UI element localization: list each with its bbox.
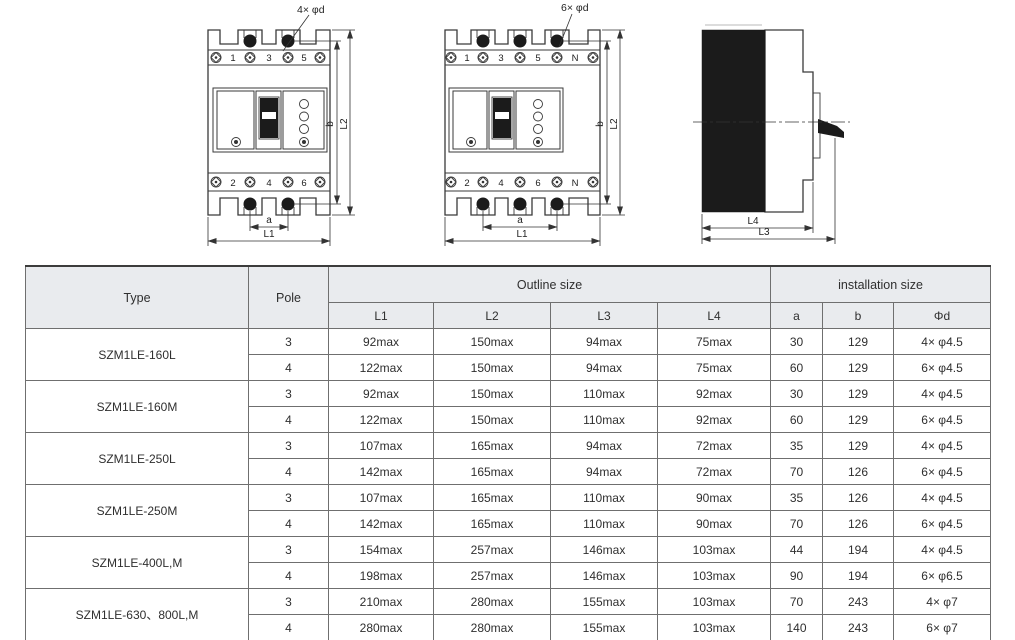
table-cell: 70: [771, 459, 823, 485]
type-cell: SZM1LE-400L,M: [26, 537, 249, 589]
terminal-label: 1: [464, 53, 469, 64]
table-cell: 4: [249, 563, 329, 589]
mounting-hole: [514, 198, 527, 211]
terminal-screw: [245, 53, 255, 63]
terminal-screw: [588, 53, 598, 63]
terminal-screw: [315, 53, 325, 63]
terminal-screw: [552, 177, 562, 187]
table-row: SZM1LE-160M392max150max110max92max301294…: [26, 381, 991, 407]
table-cell: 150max: [434, 407, 551, 433]
dim-label-l1: L1: [263, 229, 275, 240]
table-cell: 90max: [658, 511, 771, 537]
table-cell: 6× φ4.5: [894, 511, 991, 537]
terminal-label: 5: [535, 53, 540, 64]
table-cell: 94max: [551, 459, 658, 485]
table-cell: 155max: [551, 615, 658, 640]
dim-label-a: a: [517, 215, 523, 226]
table-cell: 110max: [551, 407, 658, 433]
table-cell: 3: [249, 589, 329, 615]
dimensions-table: Type Pole Outline size installation size…: [25, 265, 991, 640]
type-cell: SZM1LE-160M: [26, 381, 249, 433]
terminal-screw: [315, 177, 325, 187]
table-row: SZM1LE-250L3107max165max94max72max351294…: [26, 433, 991, 459]
table-cell: 198max: [329, 563, 434, 589]
table-cell: 6× φ7: [894, 615, 991, 640]
table-cell: 3: [249, 433, 329, 459]
table-cell: 129: [823, 329, 894, 355]
table-cell: 94max: [551, 433, 658, 459]
table-cell: 129: [823, 433, 894, 459]
datasheet-page: 1 3 5 2 4 6: [0, 0, 1015, 640]
table-cell: 194: [823, 563, 894, 589]
col-header-l1: L1: [329, 303, 434, 329]
terminal-screw: [211, 177, 221, 187]
table-cell: 44: [771, 537, 823, 563]
dim-label-a: a: [266, 215, 272, 226]
terminal-screw: [245, 177, 255, 187]
table-cell: 30: [771, 329, 823, 355]
side-body-outline: [765, 30, 813, 212]
table-cell: 4: [249, 355, 329, 381]
table-cell: 280max: [434, 589, 551, 615]
table-cell: 150max: [434, 381, 551, 407]
dim-label-l2: L2: [339, 118, 350, 130]
table-cell: 6× φ4.5: [894, 407, 991, 433]
col-header-installation-size: installation size: [771, 266, 991, 303]
table-cell: 72max: [658, 433, 771, 459]
table-cell: 94max: [551, 355, 658, 381]
front-view-3pole: 1 3 5 2 4 6: [208, 4, 355, 246]
table-cell: 4× φ7: [894, 589, 991, 615]
table-cell: 110max: [551, 485, 658, 511]
table-cell: 103max: [658, 589, 771, 615]
terminal-label: 4: [266, 178, 271, 189]
side-body-black: [702, 30, 765, 212]
type-cell: SZM1LE-160L: [26, 329, 249, 381]
table-cell: 165max: [434, 485, 551, 511]
table-cell: 6× φ4.5: [894, 355, 991, 381]
table-cell: 165max: [434, 511, 551, 537]
table-cell: 4: [249, 407, 329, 433]
table-cell: 257max: [434, 537, 551, 563]
mounting-hole: [477, 198, 490, 211]
table-cell: 30: [771, 381, 823, 407]
terminal-label: 1: [230, 53, 235, 64]
table-cell: 129: [823, 355, 894, 381]
terminal-screw: [283, 177, 293, 187]
terminal-label: 3: [266, 53, 271, 64]
dim-label-l3: L3: [758, 227, 770, 238]
terminal-label: 6: [301, 178, 306, 189]
col-header-l3: L3: [551, 303, 658, 329]
terminal-screw: [552, 53, 562, 63]
table-cell: 140: [771, 615, 823, 640]
terminal-label: 5: [301, 53, 306, 64]
terminal-label: N: [572, 53, 579, 64]
table-cell: 155max: [551, 589, 658, 615]
terminal-label: 3: [498, 53, 503, 64]
table-cell: 110max: [551, 381, 658, 407]
table-cell: 6× φ4.5: [894, 459, 991, 485]
table-cell: 4× φ4.5: [894, 381, 991, 407]
hole-count-label: 6× φd: [561, 2, 589, 14]
table-cell: 150max: [434, 329, 551, 355]
terminal-screw: [478, 177, 488, 187]
table-cell: 107max: [329, 433, 434, 459]
table-cell: 4: [249, 511, 329, 537]
table-cell: 4× φ4.5: [894, 329, 991, 355]
table-cell: 126: [823, 459, 894, 485]
col-header-l4: L4: [658, 303, 771, 329]
terminal-screw: [515, 53, 525, 63]
dim-label-l2: L2: [609, 118, 620, 130]
dim-label-l1: L1: [516, 229, 528, 240]
table-cell: 70: [771, 511, 823, 537]
table-cell: 103max: [658, 563, 771, 589]
terminal-screw: [478, 53, 488, 63]
table-row: SZM1LE-630、800L,M3210max280max155max103m…: [26, 589, 991, 615]
table-cell: 60: [771, 407, 823, 433]
mounting-hole: [282, 35, 295, 48]
table-cell: 92max: [329, 381, 434, 407]
table-cell: 107max: [329, 485, 434, 511]
table-cell: 75max: [658, 355, 771, 381]
table-row: SZM1LE-250M3107max165max110max90max35126…: [26, 485, 991, 511]
table-cell: 122max: [329, 355, 434, 381]
mounting-hole: [477, 35, 490, 48]
table-cell: 94max: [551, 329, 658, 355]
col-header-phi-d: Φd: [894, 303, 991, 329]
table-cell: 4× φ4.5: [894, 433, 991, 459]
table-cell: 103max: [658, 537, 771, 563]
dim-label-b: b: [595, 121, 606, 127]
table-cell: 72max: [658, 459, 771, 485]
hole-count-label: 4× φd: [297, 4, 325, 16]
table-cell: 129: [823, 381, 894, 407]
terminal-screw: [446, 53, 456, 63]
table-cell: 154max: [329, 537, 434, 563]
terminal-label: 6: [535, 178, 540, 189]
table-cell: 90: [771, 563, 823, 589]
side-view: L4 L3: [693, 25, 850, 244]
table-cell: 210max: [329, 589, 434, 615]
col-header-type: Type: [26, 266, 249, 329]
mounting-hole: [244, 198, 257, 211]
table-cell: 4: [249, 459, 329, 485]
drawings-svg: 1 3 5 2 4 6: [0, 0, 1015, 262]
table-cell: 3: [249, 537, 329, 563]
mounting-hole: [514, 35, 527, 48]
type-cell: SZM1LE-250L: [26, 433, 249, 485]
table-cell: 243: [823, 589, 894, 615]
terminal-screw: [446, 177, 456, 187]
table-cell: 165max: [434, 459, 551, 485]
terminal-screw: [283, 53, 293, 63]
table-cell: 146max: [551, 563, 658, 589]
dim-label-l4: L4: [747, 216, 759, 227]
table-cell: 126: [823, 511, 894, 537]
col-header-a: a: [771, 303, 823, 329]
col-header-b: b: [823, 303, 894, 329]
terminal-screw: [211, 53, 221, 63]
col-header-outline-size: Outline size: [329, 266, 771, 303]
col-header-l2: L2: [434, 303, 551, 329]
table-cell: 3: [249, 381, 329, 407]
table-cell: 4× φ4.5: [894, 537, 991, 563]
terminal-screw: [515, 177, 525, 187]
table-cell: 75max: [658, 329, 771, 355]
mounting-hole: [282, 198, 295, 211]
table-cell: 257max: [434, 563, 551, 589]
table-cell: 60: [771, 355, 823, 381]
table-cell: 280max: [329, 615, 434, 640]
table-cell: 280max: [434, 615, 551, 640]
table-cell: 92max: [658, 407, 771, 433]
col-header-pole: Pole: [249, 266, 329, 329]
table-cell: 110max: [551, 511, 658, 537]
table-cell: 142max: [329, 511, 434, 537]
table-cell: 142max: [329, 459, 434, 485]
terminal-screw: [588, 177, 598, 187]
table-cell: 4: [249, 615, 329, 640]
type-cell: SZM1LE-250M: [26, 485, 249, 537]
table-cell: 90max: [658, 485, 771, 511]
table-cell: 103max: [658, 615, 771, 640]
front-view-4pole: 1 3 5 N 2 4 6 N: [445, 2, 625, 246]
terminal-label: 4: [498, 178, 503, 189]
table-body: SZM1LE-160L392max150max94max75max301294×…: [26, 329, 991, 640]
table-cell: 3: [249, 485, 329, 511]
table-cell: 35: [771, 433, 823, 459]
table-cell: 122max: [329, 407, 434, 433]
table-cell: 35: [771, 485, 823, 511]
terminal-label: 2: [230, 178, 235, 189]
dim-label-b: b: [325, 121, 336, 127]
table-cell: 4× φ4.5: [894, 485, 991, 511]
table-cell: 92max: [658, 381, 771, 407]
table-cell: 150max: [434, 355, 551, 381]
table-cell: 129: [823, 407, 894, 433]
table-cell: 6× φ6.5: [894, 563, 991, 589]
table-row: SZM1LE-400L,M3154max257max146max103max44…: [26, 537, 991, 563]
dimension-drawings: 1 3 5 2 4 6: [0, 0, 1015, 262]
table-cell: 70: [771, 589, 823, 615]
terminal-label: N: [572, 178, 579, 189]
table-cell: 243: [823, 615, 894, 640]
table-cell: 194: [823, 537, 894, 563]
table-cell: 92max: [329, 329, 434, 355]
table-cell: 146max: [551, 537, 658, 563]
table-row: SZM1LE-160L392max150max94max75max301294×…: [26, 329, 991, 355]
table-cell: 165max: [434, 433, 551, 459]
terminal-label: 2: [464, 178, 469, 189]
type-cell: SZM1LE-630、800L,M: [26, 589, 249, 640]
mounting-hole: [551, 198, 564, 211]
table-cell: 3: [249, 329, 329, 355]
table-cell: 126: [823, 485, 894, 511]
mounting-hole: [244, 35, 257, 48]
